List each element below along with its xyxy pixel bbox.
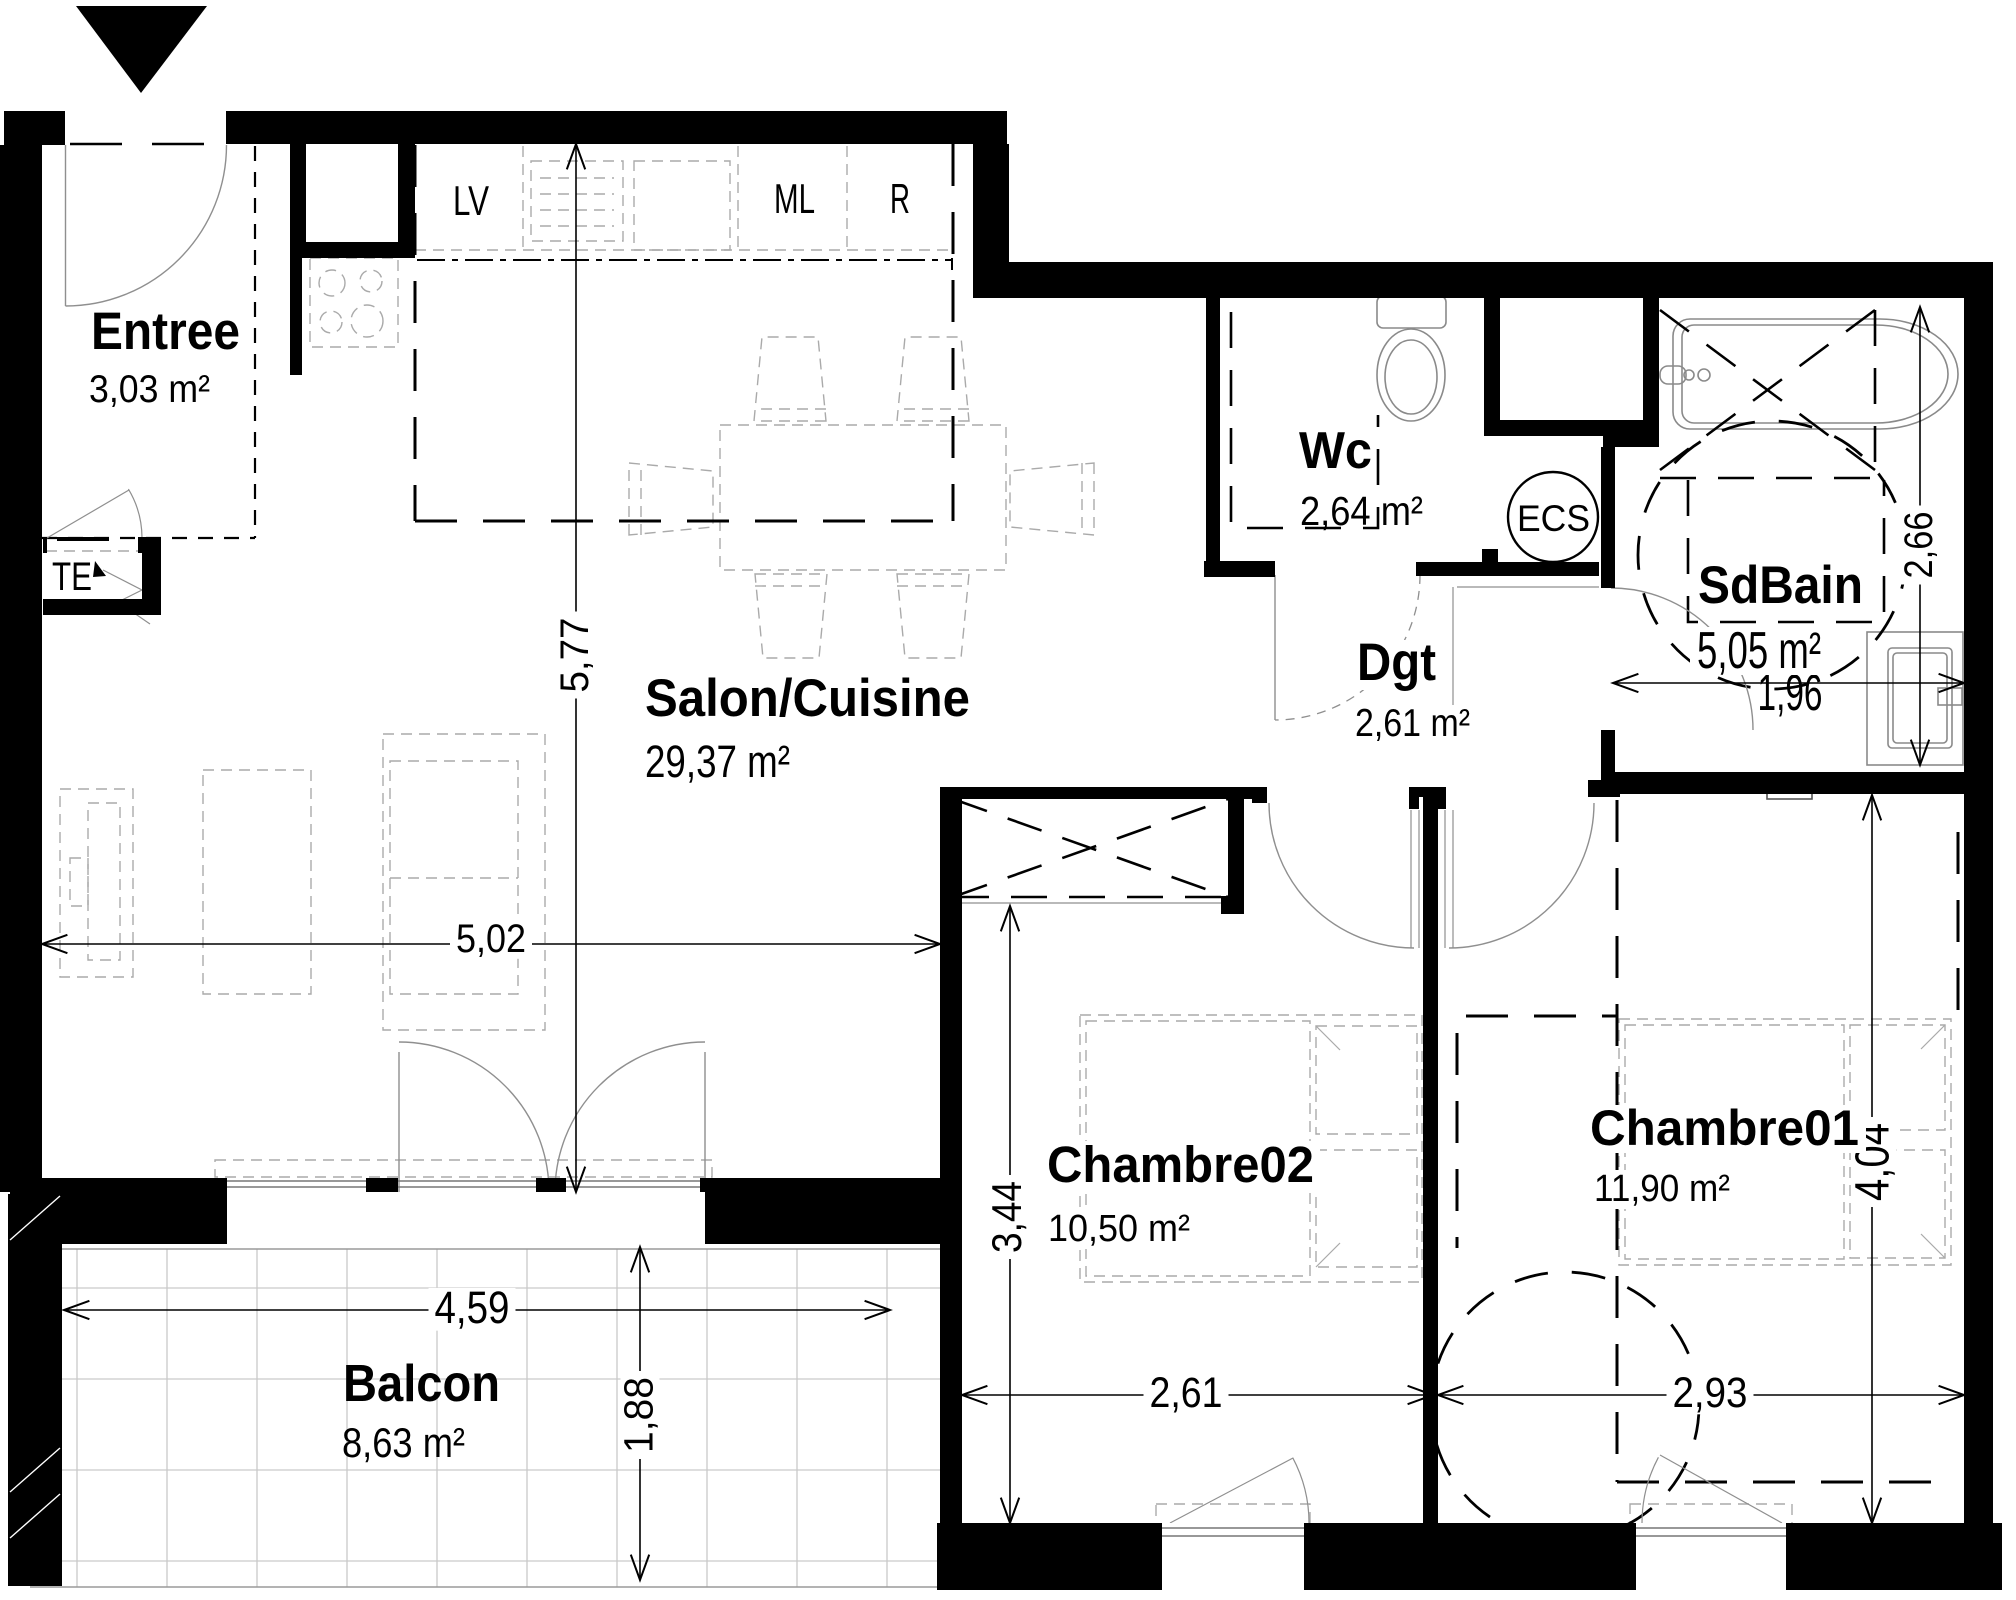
svg-text:Balcon: Balcon	[343, 1355, 500, 1413]
svg-text:29,37 m²: 29,37 m²	[645, 736, 790, 787]
svg-text:Salon/Cuisine: Salon/Cuisine	[645, 669, 970, 728]
svg-text:ML: ML	[774, 175, 815, 222]
svg-text:LV: LV	[453, 177, 489, 224]
svg-text:11,90 m²: 11,90 m²	[1594, 1168, 1730, 1210]
svg-text:ECS: ECS	[1517, 498, 1590, 539]
svg-text:5,02: 5,02	[456, 917, 526, 961]
svg-text:Chambre02: Chambre02	[1047, 1136, 1314, 1193]
svg-text:3,44: 3,44	[983, 1181, 1030, 1253]
svg-text:SdBain: SdBain	[1698, 556, 1863, 615]
svg-text:2,64 m²: 2,64 m²	[1300, 488, 1423, 534]
svg-text:3,03 m²: 3,03 m²	[89, 368, 210, 411]
svg-text:Wc: Wc	[1299, 422, 1372, 480]
svg-text:2,61 m²: 2,61 m²	[1355, 702, 1470, 745]
svg-text:5,05 m²: 5,05 m²	[1697, 622, 1821, 680]
svg-text:Chambre01: Chambre01	[1590, 1100, 1859, 1156]
svg-text:1,88: 1,88	[615, 1377, 661, 1453]
svg-text:8,63 m²: 8,63 m²	[342, 1419, 465, 1466]
svg-text:2,66: 2,66	[1897, 512, 1941, 579]
svg-text:R: R	[890, 175, 910, 222]
svg-text:2,93: 2,93	[1673, 1369, 1748, 1417]
svg-text:TE: TE	[52, 555, 92, 599]
svg-text:2,61: 2,61	[1150, 1369, 1223, 1417]
svg-text:Entree: Entree	[91, 302, 240, 361]
svg-text:4,59: 4,59	[435, 1282, 510, 1333]
svg-text:10,50 m²: 10,50 m²	[1048, 1208, 1190, 1250]
svg-text:Dgt: Dgt	[1357, 633, 1436, 692]
svg-text:5,77: 5,77	[553, 618, 597, 693]
